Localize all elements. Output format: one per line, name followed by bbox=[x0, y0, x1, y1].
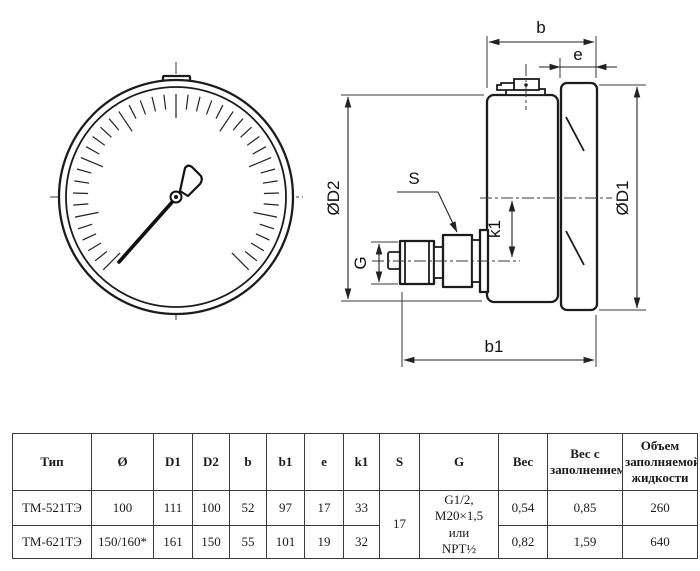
cell-s-merged: 17 bbox=[380, 491, 420, 559]
cell-b1: 97 bbox=[267, 491, 305, 526]
table-row: ТМ-521ТЭ 100 111 100 52 97 17 33 17 G1/2… bbox=[13, 491, 698, 526]
cell-weight: 0,82 bbox=[499, 526, 548, 559]
col-header-d1: D1 bbox=[154, 434, 193, 491]
cell-d2: 150 bbox=[193, 526, 230, 559]
cell-b: 52 bbox=[230, 491, 267, 526]
cell-e: 17 bbox=[305, 491, 344, 526]
col-header-s: S bbox=[380, 434, 420, 491]
page: b e ØD2 ØD1 G k1 bbox=[0, 0, 700, 571]
col-header-weight: Вес bbox=[499, 434, 548, 491]
dim-label-d2: ØD2 bbox=[324, 181, 343, 216]
col-header-weight-filled: Вес с заполнением bbox=[548, 434, 623, 491]
col-header-d2: D2 bbox=[193, 434, 230, 491]
cell-e: 19 bbox=[305, 526, 344, 559]
col-header-volume: Объем заполняемой жидкости bbox=[623, 434, 698, 491]
cell-b: 55 bbox=[230, 526, 267, 559]
dim-label-b1: b1 bbox=[485, 337, 504, 356]
spec-table: Тип Ø D1 D2 b b1 e k1 S G Вес Вес с запо… bbox=[12, 433, 698, 559]
dim-label-d1: ØD1 bbox=[613, 181, 632, 216]
cell-b1: 101 bbox=[267, 526, 305, 559]
dim-label-e: e bbox=[573, 45, 582, 64]
dial-tick bbox=[73, 193, 88, 194]
gauge-front-view bbox=[50, 62, 303, 320]
technical-drawing: b e ØD2 ØD1 G k1 bbox=[0, 0, 700, 430]
cell-g-merged: G1/2, M20×1,5 или NPT½ bbox=[420, 491, 499, 559]
cell-d1: 161 bbox=[154, 526, 193, 559]
cell-weight: 0,54 bbox=[499, 491, 548, 526]
col-header-b: b bbox=[230, 434, 267, 491]
dial-tick bbox=[264, 193, 279, 194]
cell-k1: 33 bbox=[344, 491, 380, 526]
col-header-b1: b1 bbox=[267, 434, 305, 491]
cell-k1: 32 bbox=[344, 526, 380, 559]
cell-weight-filled: 0,85 bbox=[548, 491, 623, 526]
cell-d1: 111 bbox=[154, 491, 193, 526]
dim-label-k1: k1 bbox=[485, 220, 504, 238]
cell-type: ТМ-621ТЭ bbox=[13, 526, 92, 559]
cell-d2: 100 bbox=[193, 491, 230, 526]
col-header-g: G bbox=[420, 434, 499, 491]
col-header-e: e bbox=[305, 434, 344, 491]
table-row: ТМ-621ТЭ 150/160* 161 150 55 101 19 32 0… bbox=[13, 526, 698, 559]
cell-volume: 260 bbox=[623, 491, 698, 526]
table-header-row: Тип Ø D1 D2 b b1 e k1 S G Вес Вес с запо… bbox=[13, 434, 698, 491]
cell-diameter: 150/160* bbox=[92, 526, 154, 559]
cell-diameter: 100 bbox=[92, 491, 154, 526]
col-header-type: Тип bbox=[13, 434, 92, 491]
leader-line-s bbox=[397, 192, 457, 232]
cell-volume: 640 bbox=[623, 526, 698, 559]
dim-label-b: b bbox=[536, 18, 545, 37]
cell-weight-filled: 1,59 bbox=[548, 526, 623, 559]
col-header-diameter: Ø bbox=[92, 434, 154, 491]
valve-lever bbox=[497, 83, 514, 90]
col-header-k1: k1 bbox=[344, 434, 380, 491]
dim-label-s: S bbox=[408, 169, 419, 188]
stem-neck bbox=[434, 247, 443, 278]
cell-type: ТМ-521ТЭ bbox=[13, 491, 92, 526]
dim-label-g: G bbox=[351, 256, 370, 269]
needle-hub-dot bbox=[174, 195, 178, 199]
